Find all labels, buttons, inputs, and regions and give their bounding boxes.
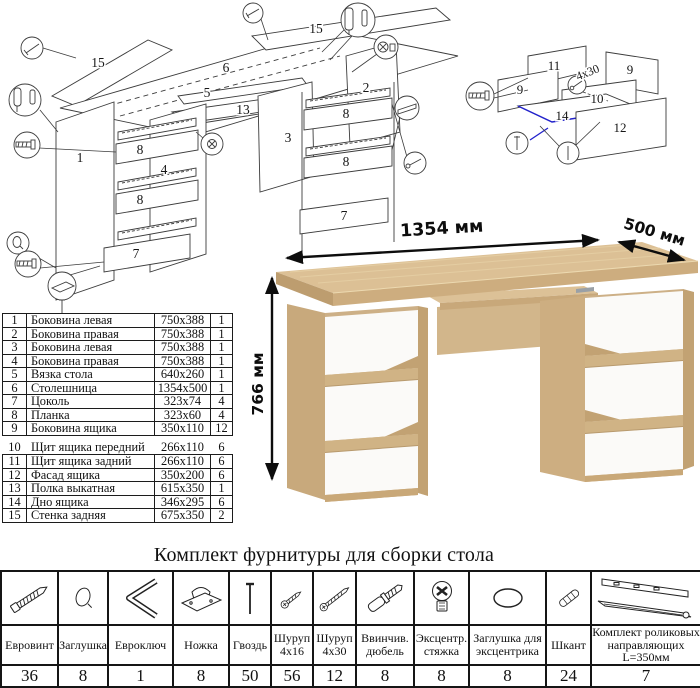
table-row: 6Столешница1354x5001 xyxy=(3,381,233,395)
screw-icon xyxy=(314,573,356,623)
hardware-table: Евровинт Заглушка Евроключ Ножка Гвоздь … xyxy=(0,570,700,688)
confirmat-screw-icon xyxy=(4,573,56,623)
cam-lock-icon xyxy=(208,140,217,149)
part-label-7: 7 xyxy=(133,246,140,261)
table-row: 4Боковина правая750x3881 xyxy=(3,354,233,368)
width-dimension: 1354 мм xyxy=(399,217,483,242)
part-label-3: 3 xyxy=(285,130,292,145)
left-pedestal-rails xyxy=(104,118,198,272)
table-row: 7Цоколь323x744 xyxy=(3,395,233,409)
hardware-qty-row: 36 8 1 8 50 56 12 8 8 8 24 7 xyxy=(1,665,700,687)
part-label-7: 7 xyxy=(341,208,348,223)
hardware-item-label: Гвоздь xyxy=(230,639,270,652)
table-row: 12Фасад ящика350x2006 xyxy=(3,468,233,482)
table-row: 14Дно ящика346x2956 xyxy=(3,495,233,509)
table-row: 10Щит ящика передний266x1106 xyxy=(3,441,233,455)
part-label-15: 15 xyxy=(91,55,105,70)
table-row: 11Щит ящика задний266x1106 xyxy=(3,455,233,469)
right-pedestal-front xyxy=(585,289,683,482)
hardware-item-label: Эксцентр. xyxy=(415,632,468,645)
hardware-names-row: Евровинт Заглушка Евроключ Ножка Гвоздь … xyxy=(1,625,700,665)
part-label-9: 9 xyxy=(627,62,634,77)
right-pedestal-edge xyxy=(683,289,694,470)
parts-table-lower: 11Щит ящика задний266x1106 12Фасад ящика… xyxy=(2,454,233,523)
bottom-highlight-leader xyxy=(530,128,548,140)
product-photo-desk: 1354 мм 500 мм 766 мм xyxy=(249,215,698,502)
table-row: 3Боковина левая750x3881 xyxy=(3,341,233,355)
part-label-12: 12 xyxy=(614,120,627,135)
part-label-8: 8 xyxy=(137,192,144,207)
hardware-item-qty: 8 xyxy=(58,665,108,687)
height-dimension: 766 мм xyxy=(249,352,267,415)
hardware-item-label: Евроключ xyxy=(109,639,172,652)
part-label-8: 8 xyxy=(343,154,350,169)
wood-dowel-icon xyxy=(547,573,591,623)
hardware-item-label: Ножка xyxy=(174,639,228,652)
plug-icon xyxy=(59,573,108,623)
hardware-item-label: Комплект роликовых xyxy=(592,626,700,639)
hardware-item-label: Заглушка для xyxy=(470,632,545,645)
left-pedestal-inner-side xyxy=(418,306,428,496)
table-row: 13Полка выкатная615x3501 xyxy=(3,482,233,496)
hardware-item-qty: 24 xyxy=(546,665,591,687)
hardware-icons-row xyxy=(1,571,700,625)
table-row: 1Боковина левая750x3881 xyxy=(3,314,233,328)
hardware-item-label: Шуруп xyxy=(272,632,312,645)
part-label-14: 14 xyxy=(556,108,570,123)
hardware-item-qty: 50 xyxy=(229,665,271,687)
hardware-item-qty: 1 xyxy=(108,665,173,687)
drawer-slides-icon xyxy=(594,573,698,623)
part-label-2: 2 xyxy=(363,80,370,95)
hardware-item-qty: 8 xyxy=(414,665,469,687)
table-row: 5Вязка стола640x2601 xyxy=(3,368,233,382)
cam-cap-icon xyxy=(478,573,538,623)
hardware-item-qty: 12 xyxy=(313,665,356,687)
table-row: 8Планка323x604 xyxy=(3,408,233,422)
part-label-1: 1 xyxy=(77,150,84,165)
part-label-8: 8 xyxy=(137,142,144,157)
table-row: 9Боковина ящика350x11012 xyxy=(3,422,233,436)
table-row: 2Боковина правая750x3881 xyxy=(3,327,233,341)
hardware-item-qty: 56 xyxy=(271,665,313,687)
nail-icon xyxy=(59,300,65,313)
parts-table-upper: 1Боковина левая750x3881 2Боковина правая… xyxy=(2,313,233,436)
hex-key-icon xyxy=(115,573,167,623)
part-label-9: 9 xyxy=(517,82,524,97)
part-label-5: 5 xyxy=(204,85,211,100)
exploded-diagram-drawer: 11 9 9 10 14 12 4x30 xyxy=(466,46,666,164)
hardware-item-label: Заглушка xyxy=(59,639,107,652)
part-label-8: 8 xyxy=(343,106,350,121)
parts-table-row10: 10Щит ящика передний266x1106 xyxy=(2,440,233,455)
screw-icon xyxy=(272,573,313,623)
part-label-4: 4 xyxy=(161,162,168,177)
hardware-item-label: Шкант xyxy=(547,639,590,652)
nail-icon xyxy=(230,573,270,623)
cam-lock-icon xyxy=(416,573,468,623)
part-label-10: 10 xyxy=(591,91,604,106)
hardware-item-qty: 8 xyxy=(469,665,546,687)
dowel-screw-icon xyxy=(359,573,411,623)
assembly-instruction-sheet: { "theme": { "oak": "#d8bc92", "oak-dark… xyxy=(0,0,700,677)
hardware-item-qty: 36 xyxy=(1,665,58,687)
part-label-11: 11 xyxy=(548,58,561,73)
hardware-item-qty: 8 xyxy=(173,665,229,687)
part-label-13: 13 xyxy=(236,102,250,117)
part-label-15: 15 xyxy=(309,21,323,36)
hardware-kit-title: Комплект фурнитуры для сборки стола xyxy=(0,544,648,567)
left-pedestal-front xyxy=(325,306,418,502)
hardware-item-label: Шуруп xyxy=(314,632,355,645)
table-row: 15Стенка задняя675x3502 xyxy=(3,509,233,523)
left-pedestal-side xyxy=(287,304,325,500)
hardware-item-label: Евровинт xyxy=(2,639,57,652)
hardware-item-qty: 8 xyxy=(356,665,414,687)
hardware-item-qty: 7 xyxy=(591,665,700,687)
part-label-6: 6 xyxy=(223,60,230,75)
foot-icon xyxy=(175,573,227,623)
right-pedestal-side xyxy=(540,296,585,482)
hardware-item-label: Ввинчив. xyxy=(357,632,413,645)
